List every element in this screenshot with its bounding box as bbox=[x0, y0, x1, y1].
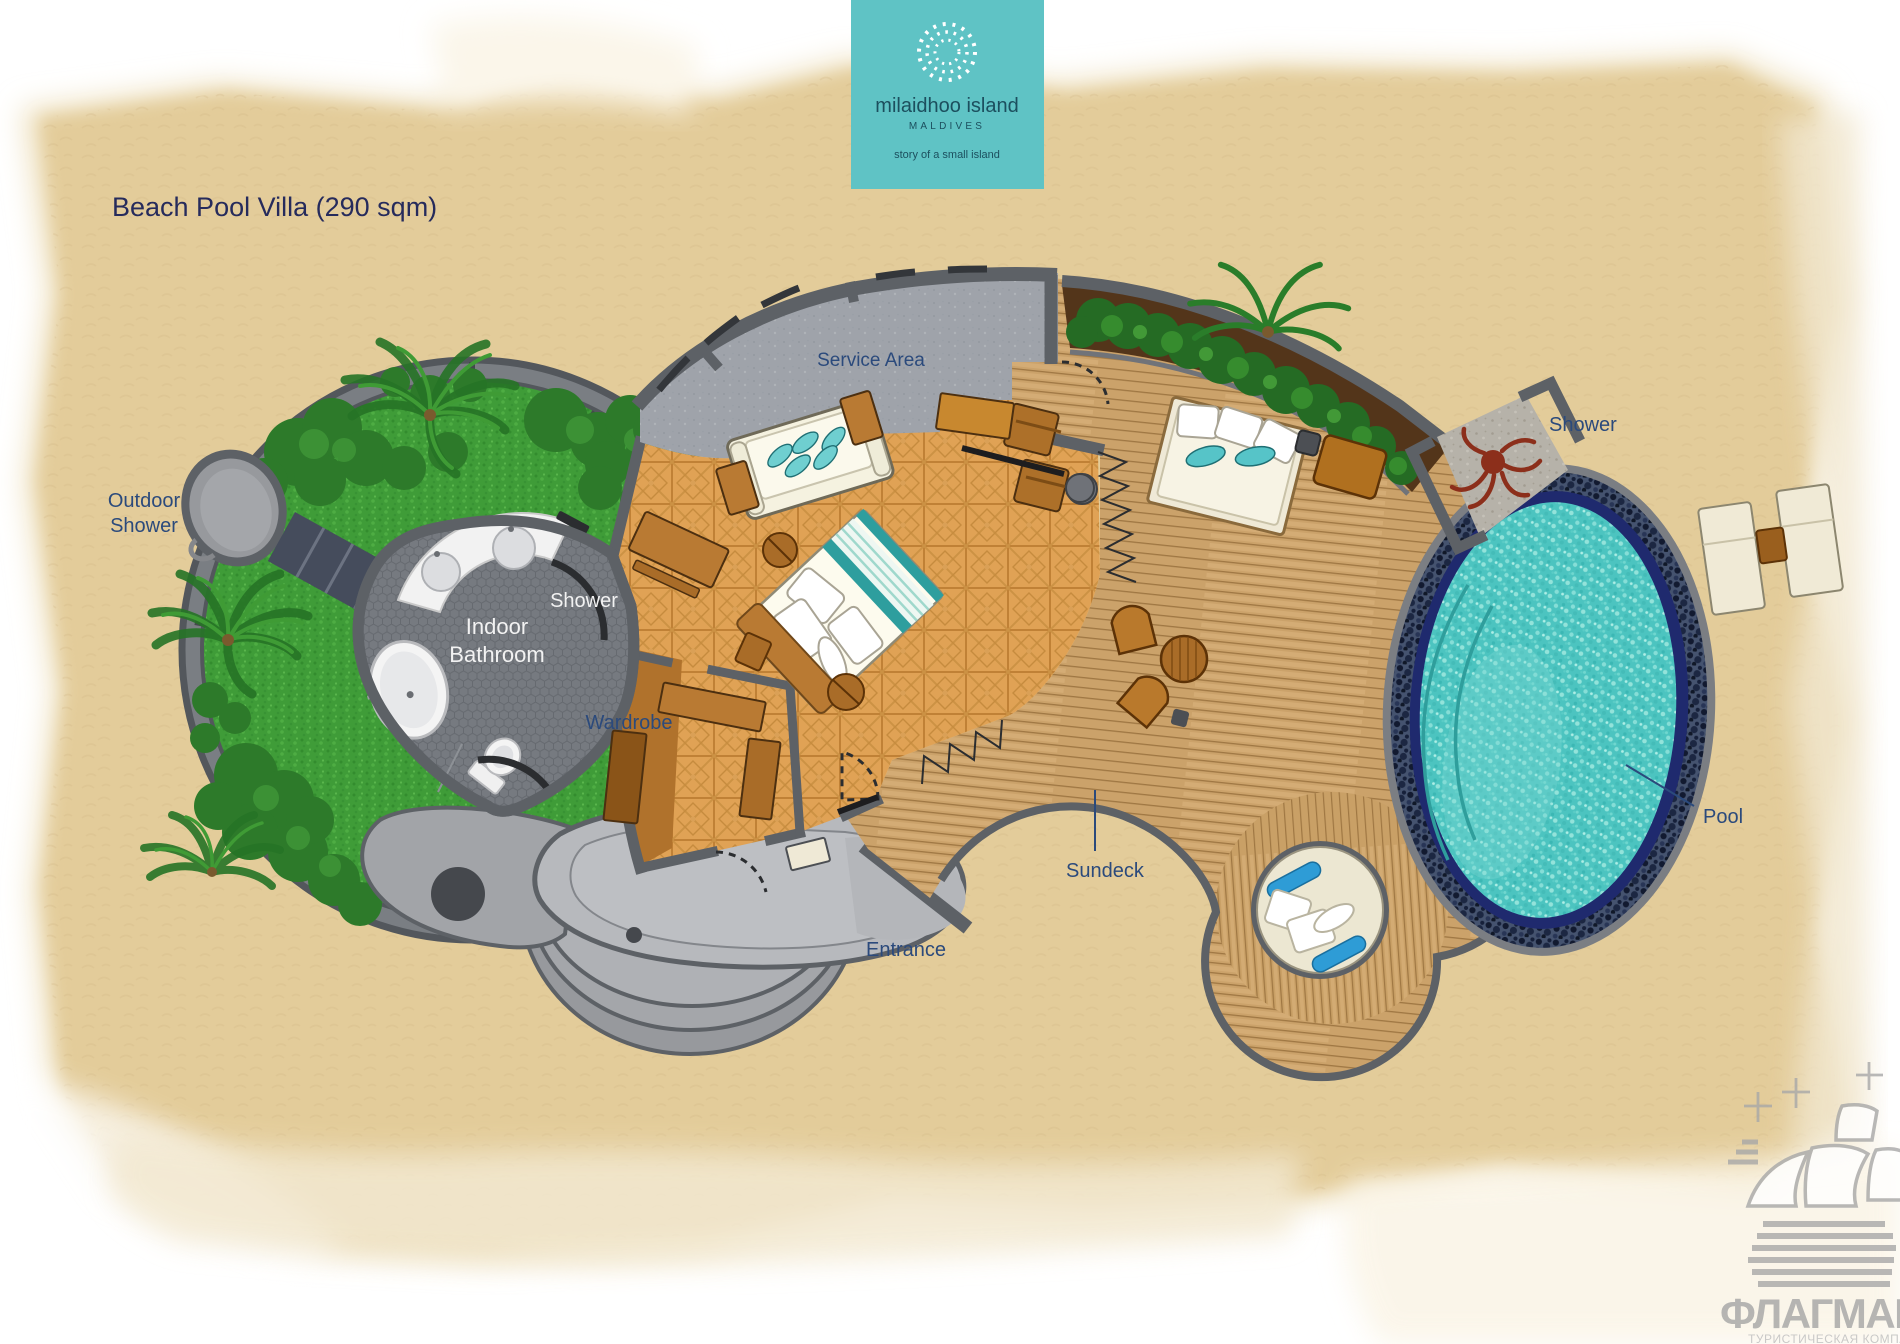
svg-text:Pool: Pool bbox=[1703, 806, 1743, 828]
svg-text:ФЛАГМАН: ФЛАГМАН bbox=[1720, 1290, 1900, 1337]
svg-text:ТУРИСТИЧЕСКАЯ КОМПАНИЯ: ТУРИСТИЧЕСКАЯ КОМПАНИЯ bbox=[1748, 1332, 1900, 1344]
svg-text:story of a small island: story of a small island bbox=[894, 149, 1000, 161]
svg-text:Bathroom: Bathroom bbox=[449, 642, 544, 667]
svg-text:Indoor: Indoor bbox=[466, 614, 528, 639]
svg-text:milaidhoo island: milaidhoo island bbox=[875, 95, 1018, 117]
svg-text:Shower: Shower bbox=[1549, 414, 1617, 436]
svg-text:Wardrobe: Wardrobe bbox=[585, 712, 672, 734]
svg-text:Sundeck: Sundeck bbox=[1066, 860, 1145, 882]
svg-text:Shower: Shower bbox=[550, 590, 618, 612]
svg-text:Entrance: Entrance bbox=[866, 939, 946, 961]
svg-text:Shower: Shower bbox=[110, 515, 178, 537]
svg-text:MALDIVES: MALDIVES bbox=[909, 121, 985, 132]
svg-text:Service Area: Service Area bbox=[817, 350, 925, 371]
svg-text:Beach Pool Villa (290 sqm): Beach Pool Villa (290 sqm) bbox=[112, 192, 437, 222]
svg-text:Outdoor: Outdoor bbox=[108, 490, 181, 512]
